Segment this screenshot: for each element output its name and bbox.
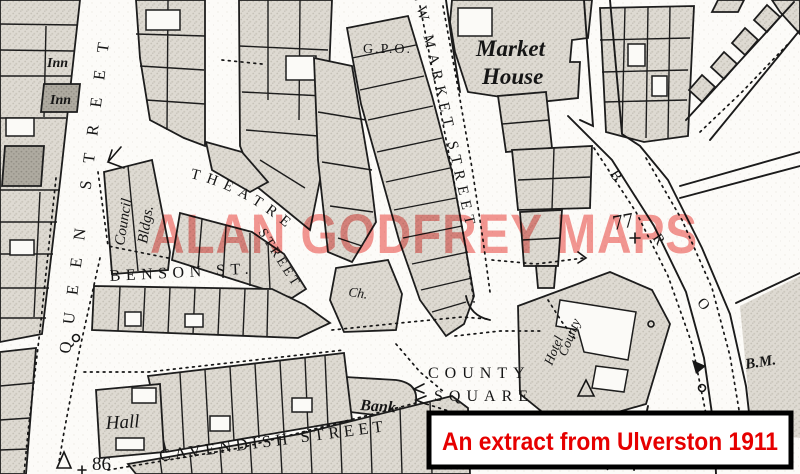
label-hall: Hall: [104, 411, 140, 434]
building-corner-terrace: [712, 0, 744, 12]
label-inn-lower: Inn: [49, 93, 71, 108]
map-canvas: QUEEN STREET NEW MARKET STREET THEATRE S…: [0, 0, 800, 474]
building-dark-block: [2, 146, 44, 186]
label-bank: Bank: [359, 397, 397, 417]
watermark-text: ALAN GODFREY MAPS: [150, 202, 698, 265]
label-church: Ch.: [348, 284, 369, 302]
label-market-house-line1: Market: [475, 36, 546, 61]
label-market-house-line2: House: [481, 64, 543, 89]
label-gpo: G.P.O.: [363, 42, 412, 57]
building-market-south-4: [536, 266, 556, 288]
label-county-square-line2: SQUARE: [434, 388, 534, 405]
caption-text: An extract from Ulverston 1911: [442, 428, 778, 456]
map-extract: QUEEN STREET NEW MARKET STREET THEATRE S…: [0, 0, 800, 474]
marker-86: 86: [92, 454, 111, 474]
label-inn-upper: Inn: [46, 56, 68, 71]
label-county-square-line1: COUNTY: [428, 365, 531, 382]
caption-box: An extract from Ulverston 1911: [429, 413, 791, 467]
